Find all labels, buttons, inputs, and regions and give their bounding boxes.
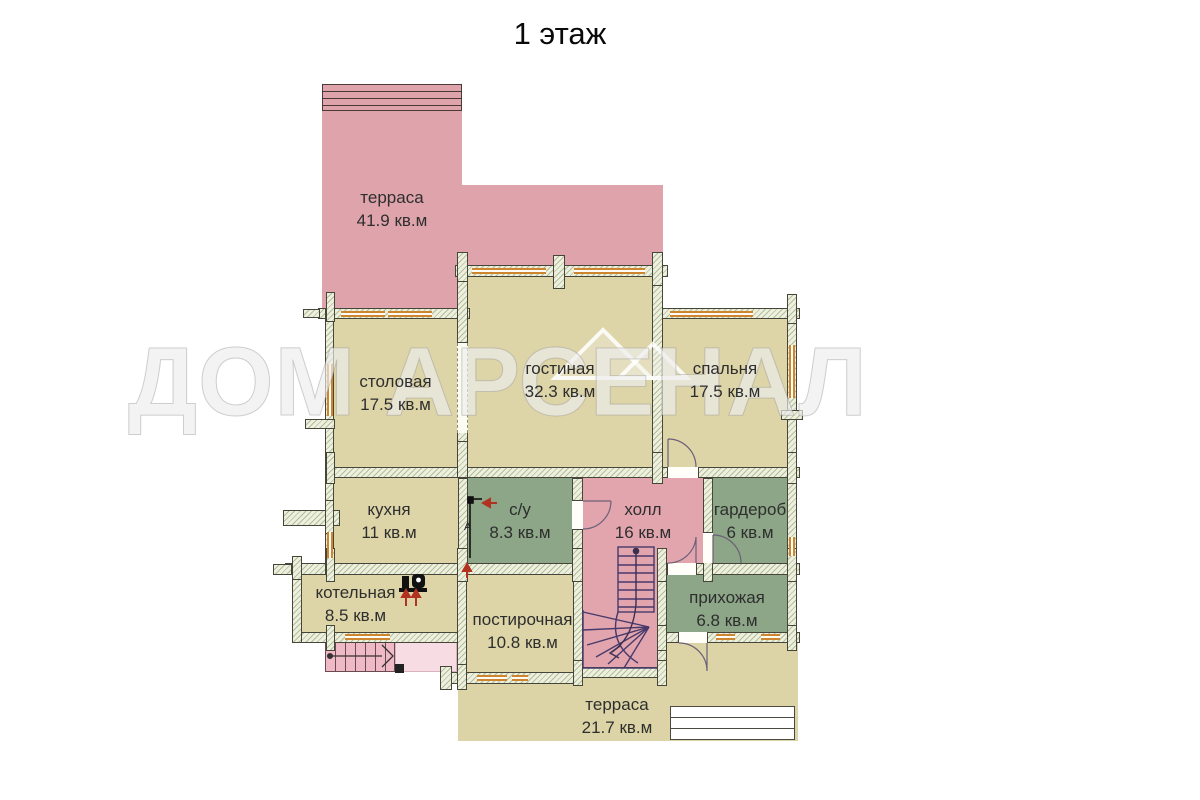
room-hall: холл 16 кв.м [583,478,703,564]
wall-joint [325,500,334,534]
page-title: 1 этаж [470,16,650,52]
window [341,311,385,317]
window [789,345,795,398]
room-area: 6.8 кв.м [696,611,757,630]
room-name: холл [624,500,661,519]
room-name: терраса [585,695,648,714]
window [512,675,528,681]
wall-joint [305,419,335,429]
room-bathroom: с/у 8.3 кв.м [468,478,572,564]
window [472,268,546,274]
floor-plan-page: 1 этаж терраса 41.9 кв.м терраса 21.7 кв… [0,0,1200,800]
wall-joint [326,292,335,322]
terrace-top-steps [322,84,462,111]
room-area: 8.3 кв.м [489,523,550,542]
room-area: 16 кв.м [615,523,672,542]
door-opening [668,467,698,478]
terrace-bottom-steps [670,706,795,740]
room-name: с/у [509,500,531,519]
room-name: спальня [693,359,758,378]
wall-joint [652,252,663,286]
room-area: 6 кв.м [726,523,773,542]
wall-joint [440,666,452,690]
wall-joint [326,625,335,651]
door-opening [679,632,707,643]
room-name: гардероб [714,500,786,519]
wall-joint [457,252,468,282]
exterior-stair-post [395,664,404,673]
wall-joint [657,548,667,582]
wall-joint [652,452,663,484]
passage-opening [457,343,468,433]
window [761,634,780,640]
room-area: 10.8 кв.м [487,633,558,652]
room-kitchen: кухня 11 кв.м [334,478,458,564]
room-living: гостиная 32.3 кв.м [468,277,652,467]
room-boiler: котельная 8.5 кв.м [302,575,457,632]
wall-joint [292,556,302,580]
room-dining: столовая 17.5 кв.м [334,318,457,467]
room-area: 21.7 кв.м [582,718,653,737]
window [327,364,333,416]
wall-segment [572,478,583,501]
room-name: постирочная [473,610,573,629]
wall-joint [787,452,797,484]
wall-segment [325,467,668,478]
window [789,537,795,556]
wall-joint [303,309,320,318]
door-opening [703,533,713,563]
wall-joint [787,625,797,651]
room-label: терраса 21.7 кв.м [582,635,675,739]
room-name: кухня [367,500,410,519]
room-area: 17.5 кв.м [360,395,431,414]
room-terrace-top-ext [462,185,663,266]
room-name: столовая [359,372,431,391]
room-name: котельная [315,583,395,602]
door-opening [572,501,583,529]
window [574,268,645,274]
room-wardrobe: гардероб 6 кв.м [713,478,787,564]
window [670,311,753,317]
wall-joint [273,564,292,575]
window [477,675,507,681]
wall-joint [553,255,565,289]
wall-segment [698,467,800,478]
room-bedroom: спальня 17.5 кв.м [663,319,787,467]
room-area: 32.3 кв.м [525,382,596,401]
wall-joint [572,548,583,582]
window [327,532,333,558]
room-terrace-top: терраса 41.9 кв.м [322,110,462,308]
room-entry: прихожая 6.8 кв.м [667,575,787,632]
wall-joint [787,294,797,324]
room-laundry: постирочная 10.8 кв.м [467,575,578,672]
room-name: гостиная [525,359,594,378]
exterior-stairs [325,641,395,672]
room-area: 17.5 кв.м [690,382,761,401]
door-opening [668,563,696,575]
wall-joint [326,452,335,484]
wall-joint [457,548,468,582]
room-area: 8.5 кв.м [325,606,386,625]
window [345,634,390,640]
room-name: терраса [360,188,423,207]
room-label: терраса 41.9 кв.м [357,186,428,232]
wall-joint [457,664,467,690]
room-name: прихожая [689,588,765,607]
wall-segment [703,478,713,533]
room-area: 41.9 кв.м [357,211,428,230]
room-area: 11 кв.м [361,523,416,542]
wall-joint [781,410,803,420]
window [388,311,432,317]
window [716,634,735,640]
wall-segment [652,265,663,478]
